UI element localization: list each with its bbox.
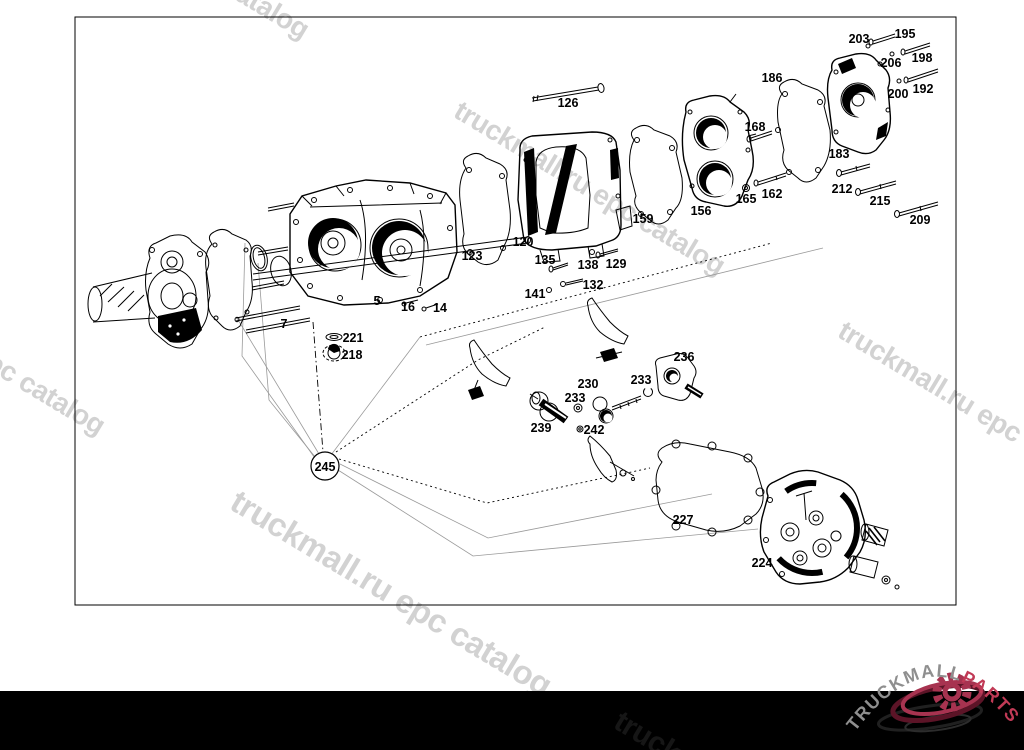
part-label-5[interactable]: 5 (374, 294, 381, 308)
part-label-203[interactable]: 203 (849, 32, 870, 46)
part-label-242[interactable]: 242 (584, 423, 605, 437)
part-label-239[interactable]: 239 (531, 421, 552, 435)
part-label-200[interactable]: 200 (888, 87, 909, 101)
part-label-120[interactable]: 120 (513, 235, 534, 249)
part-label-123[interactable]: 123 (462, 249, 483, 263)
part-label-168[interactable]: 168 (745, 120, 766, 134)
watermark-text: truckmall.ru epc catalog (833, 315, 1024, 501)
part-label-129[interactable]: 129 (606, 257, 627, 271)
part-label-224[interactable]: 224 (752, 556, 773, 570)
part-labels: 5714161201231261291321351381411561591621… (281, 27, 934, 570)
part-label-183[interactable]: 183 (829, 147, 850, 161)
part-label-236[interactable]: 236 (674, 350, 695, 364)
gasket-kit-callout-number[interactable]: 245 (315, 460, 336, 474)
part-label-162[interactable]: 162 (762, 187, 783, 201)
part-detents (530, 354, 702, 433)
part-label-206[interactable]: 206 (881, 56, 902, 70)
watermark-text: truckmall.ru epc catalog (224, 482, 558, 703)
part-gasket-227 (652, 440, 764, 536)
watermark-text: truckmall.ru epc catalog (0, 255, 111, 441)
part-small-gasket (206, 229, 253, 330)
part-label-138[interactable]: 138 (578, 258, 599, 272)
part-pump-housing (146, 235, 209, 348)
part-label-14[interactable]: 14 (433, 301, 447, 315)
catalog-page: truckmall.ru epc catalogtruckmall.ru epc… (0, 0, 1024, 750)
part-label-195[interactable]: 195 (895, 27, 916, 41)
part-label-192[interactable]: 192 (913, 82, 934, 96)
parts-drawing (88, 34, 938, 589)
part-label-132[interactable]: 132 (583, 278, 604, 292)
part-label-186[interactable]: 186 (762, 71, 783, 85)
part-label-159[interactable]: 159 (633, 212, 654, 226)
part-label-233[interactable]: 233 (631, 373, 652, 387)
part-label-141[interactable]: 141 (525, 287, 546, 301)
part-label-215[interactable]: 215 (870, 194, 891, 208)
part-gasket-123 (460, 153, 511, 264)
part-label-212[interactable]: 212 (832, 182, 853, 196)
part-label-227[interactable]: 227 (673, 513, 694, 527)
gasket-kit-callout[interactable]: 245 (311, 452, 339, 480)
part-label-16[interactable]: 16 (401, 300, 415, 314)
part-label-233[interactable]: 233 (565, 391, 586, 405)
part-label-135[interactable]: 135 (535, 253, 556, 267)
part-label-165[interactable]: 165 (736, 192, 757, 206)
part-label-198[interactable]: 198 (912, 51, 933, 65)
part-label-126[interactable]: 126 (558, 96, 579, 110)
part-shift-forks (468, 298, 635, 482)
part-label-230[interactable]: 230 (578, 377, 599, 391)
part-label-218[interactable]: 218 (342, 348, 363, 362)
part-label-209[interactable]: 209 (910, 213, 931, 227)
exploded-parts-diagram: truckmall.ru epc catalogtruckmall.ru epc… (0, 0, 1024, 750)
part-label-7[interactable]: 7 (281, 317, 288, 331)
part-label-221[interactable]: 221 (343, 331, 364, 345)
part-label-156[interactable]: 156 (691, 204, 712, 218)
part-gasket-186 (778, 79, 831, 182)
